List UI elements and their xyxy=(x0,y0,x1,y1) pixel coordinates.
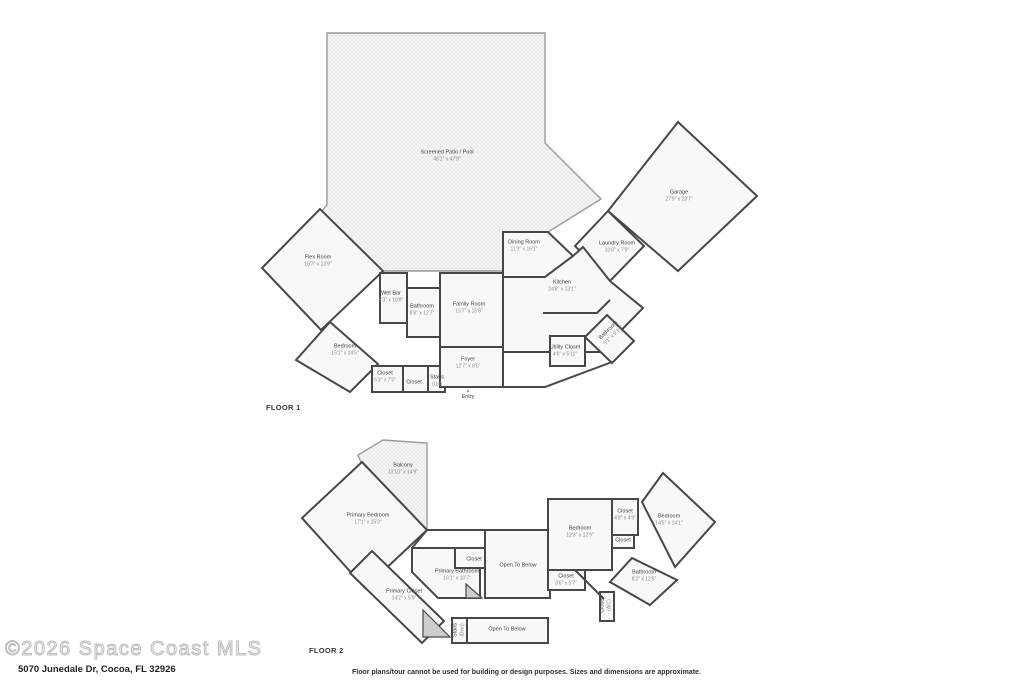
open-to-below2-outline xyxy=(467,618,548,643)
floor2-label: FLOOR 2 xyxy=(309,646,344,655)
floor1-label: FLOOR 1 xyxy=(266,403,301,412)
utility-closet-outline xyxy=(550,336,585,366)
screened-patio-outline xyxy=(322,33,601,271)
foyer-outline xyxy=(440,347,503,387)
stairs-down-outline xyxy=(452,618,467,643)
closet5-outline xyxy=(612,535,634,548)
closet1-outline xyxy=(372,366,403,392)
mls-watermark: ©2026 Space Coast MLS xyxy=(5,638,262,661)
floor-plan-page: Screened Patio / Pool 46'1" x 47'9" Gara… xyxy=(0,0,1024,683)
family-room-outline xyxy=(440,273,503,347)
bedroom1-outline xyxy=(296,322,378,392)
wet-bar-outline xyxy=(380,273,407,323)
closet4-outline xyxy=(612,499,638,535)
closet6-outline xyxy=(548,570,585,590)
closet2-outline xyxy=(403,366,428,392)
closet3-outline xyxy=(455,548,488,568)
bathroom1-outline xyxy=(407,288,440,337)
floor-plan-canvas xyxy=(0,0,1024,683)
bathroom3-outline xyxy=(610,558,677,605)
floor1-walls xyxy=(262,33,757,392)
disclaimer-text: Floor plans/tour cannot be used for buil… xyxy=(352,669,701,676)
open-to-below1-outline xyxy=(485,530,550,598)
property-address: 5070 Junedale Dr, Cocoa, FL 32926 xyxy=(18,664,176,675)
bedroom3-outline xyxy=(642,473,715,567)
bedroom2-outline xyxy=(548,499,612,570)
floor2-walls xyxy=(302,440,715,643)
